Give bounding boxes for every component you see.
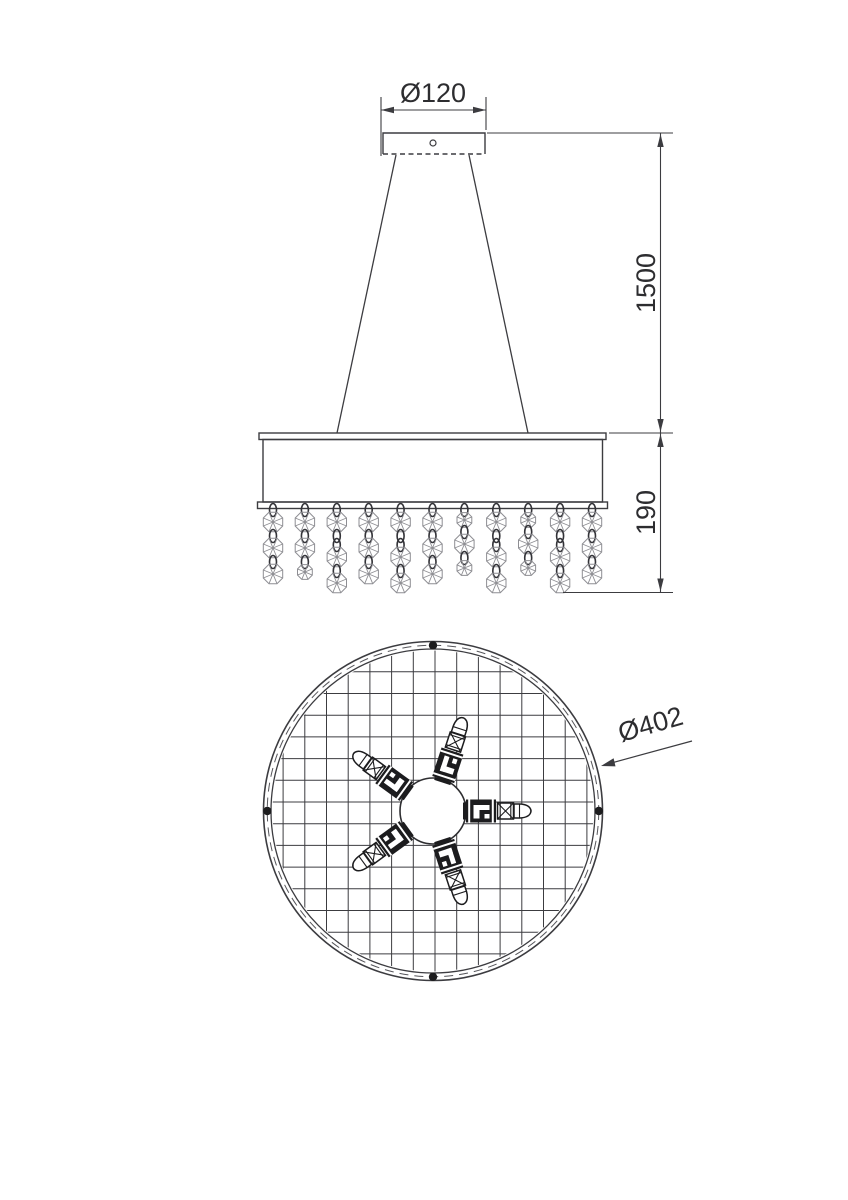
mounting-dot — [595, 807, 603, 815]
crystal-strand — [455, 504, 474, 576]
dim-canopy-diameter: Ø120 — [381, 78, 486, 156]
lamp-arm — [431, 836, 474, 908]
side-view — [258, 133, 608, 593]
arrow-down — [657, 579, 663, 592]
crystal-strand — [391, 504, 410, 593]
ceiling-canopy — [383, 133, 485, 154]
arrow-down — [657, 419, 663, 432]
mounting-dot — [263, 807, 271, 815]
technical-drawing-canvas: Ø120 1500 190 Ø402 — [0, 0, 848, 1200]
lamp-arm — [463, 800, 531, 823]
crystal-strand — [550, 504, 569, 593]
dim-shade-height: 190 — [563, 433, 673, 593]
crystal-strands — [263, 504, 601, 593]
shade-diameter-label: Ø402 — [615, 701, 687, 748]
crystal-strand — [359, 504, 378, 584]
mounting-dot — [429, 973, 437, 981]
crystal-strand — [263, 504, 282, 584]
crystal-strand — [423, 504, 442, 584]
crystal-strand — [582, 504, 601, 584]
drum-shade — [258, 433, 608, 509]
shade-body — [263, 440, 603, 503]
arrow-right — [473, 107, 486, 113]
drawing-svg: Ø120 1500 190 Ø402 — [0, 0, 848, 1200]
dim-shade-diameter: Ø402 — [601, 701, 692, 767]
dim-suspension-height: 1500 — [487, 133, 673, 433]
arrow-left — [381, 107, 394, 113]
crystal-strand — [327, 504, 346, 593]
crystal-strand — [519, 504, 538, 576]
leader-arrow — [601, 758, 616, 766]
canopy-diameter-label: Ø120 — [400, 78, 466, 108]
arrow-up — [657, 434, 663, 447]
suspension-height-label: 1500 — [631, 253, 661, 313]
canopy-screw-hole — [430, 140, 436, 146]
lamp-arm — [347, 819, 416, 878]
suspension-wires — [337, 155, 528, 433]
lamp-arm — [431, 714, 474, 786]
crystal-strand — [487, 504, 506, 593]
shade-top-rim — [259, 433, 606, 440]
mounting-dot — [429, 641, 437, 649]
crystal-strand — [295, 504, 314, 580]
arrow-up — [657, 134, 663, 147]
bottom-view: Ø402 — [263, 641, 692, 981]
shade-height-label: 190 — [631, 490, 661, 535]
lamp-arm — [347, 744, 416, 803]
